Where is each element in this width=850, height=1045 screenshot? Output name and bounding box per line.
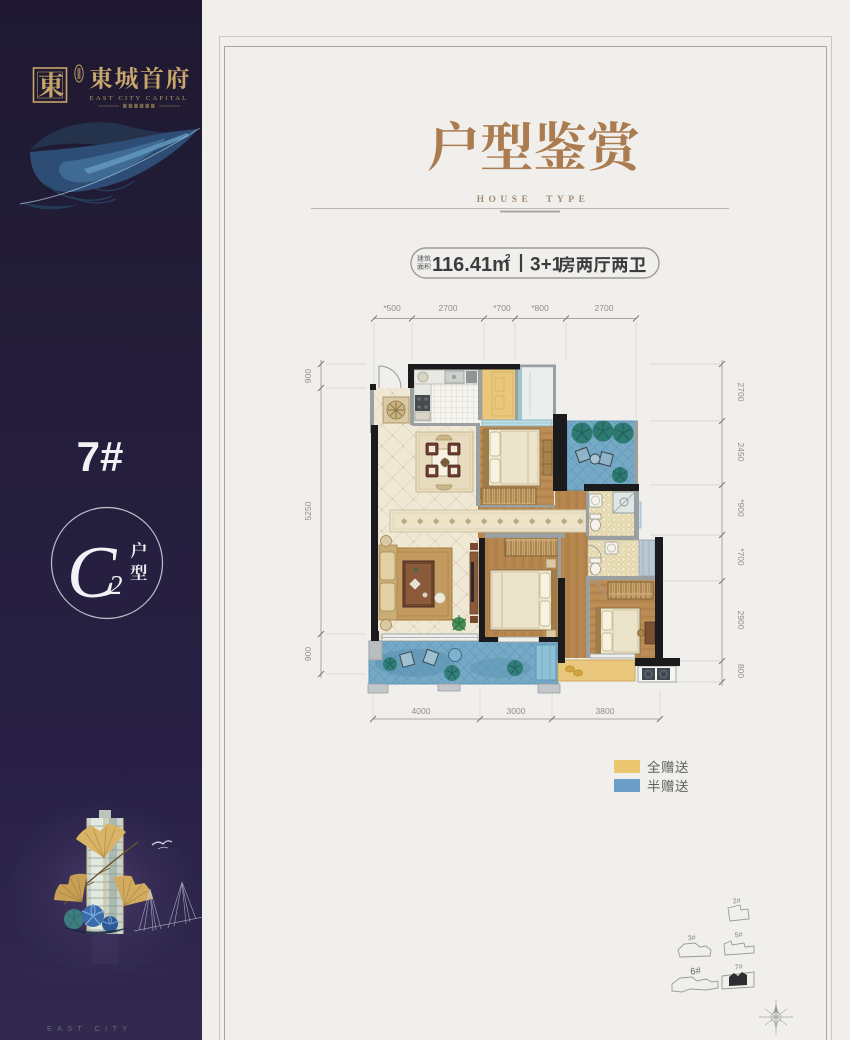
svg-text:EAST CITY CAPITAL: EAST CITY CAPITAL: [90, 95, 189, 102]
svg-text:900: 900: [303, 369, 313, 383]
svg-text:3#: 3#: [687, 934, 696, 942]
svg-text:3000: 3000: [507, 706, 526, 716]
svg-text:7#: 7#: [734, 963, 743, 971]
svg-text:3800: 3800: [596, 706, 615, 716]
svg-text:2450: 2450: [736, 443, 746, 462]
svg-text:900: 900: [303, 647, 313, 661]
svg-text:2: 2: [109, 570, 123, 600]
svg-text:*700: *700: [493, 303, 511, 313]
svg-text:2700: 2700: [595, 303, 614, 313]
svg-text:*800: *800: [531, 303, 549, 313]
svg-text:EAST CITY: EAST CITY: [47, 1026, 133, 1033]
svg-text:800: 800: [736, 664, 746, 678]
svg-text:2#: 2#: [732, 897, 741, 905]
svg-text:2700: 2700: [736, 383, 746, 402]
svg-text:5250: 5250: [303, 501, 313, 520]
svg-text:*900: *900: [736, 499, 746, 517]
svg-text:HOUSE TYPE: HOUSE TYPE: [477, 195, 590, 205]
svg-text:5#: 5#: [734, 931, 743, 939]
svg-text:*500: *500: [383, 303, 401, 313]
svg-text:116.41m: 116.41m: [432, 254, 510, 276]
svg-text:2700: 2700: [439, 303, 458, 313]
svg-text:2900: 2900: [736, 611, 746, 630]
svg-text:4000: 4000: [412, 706, 431, 716]
svg-text:3+1: 3+1: [530, 255, 563, 276]
svg-text:7#: 7#: [77, 433, 124, 480]
svg-text:2: 2: [505, 253, 511, 264]
svg-text:*700: *700: [736, 548, 746, 566]
